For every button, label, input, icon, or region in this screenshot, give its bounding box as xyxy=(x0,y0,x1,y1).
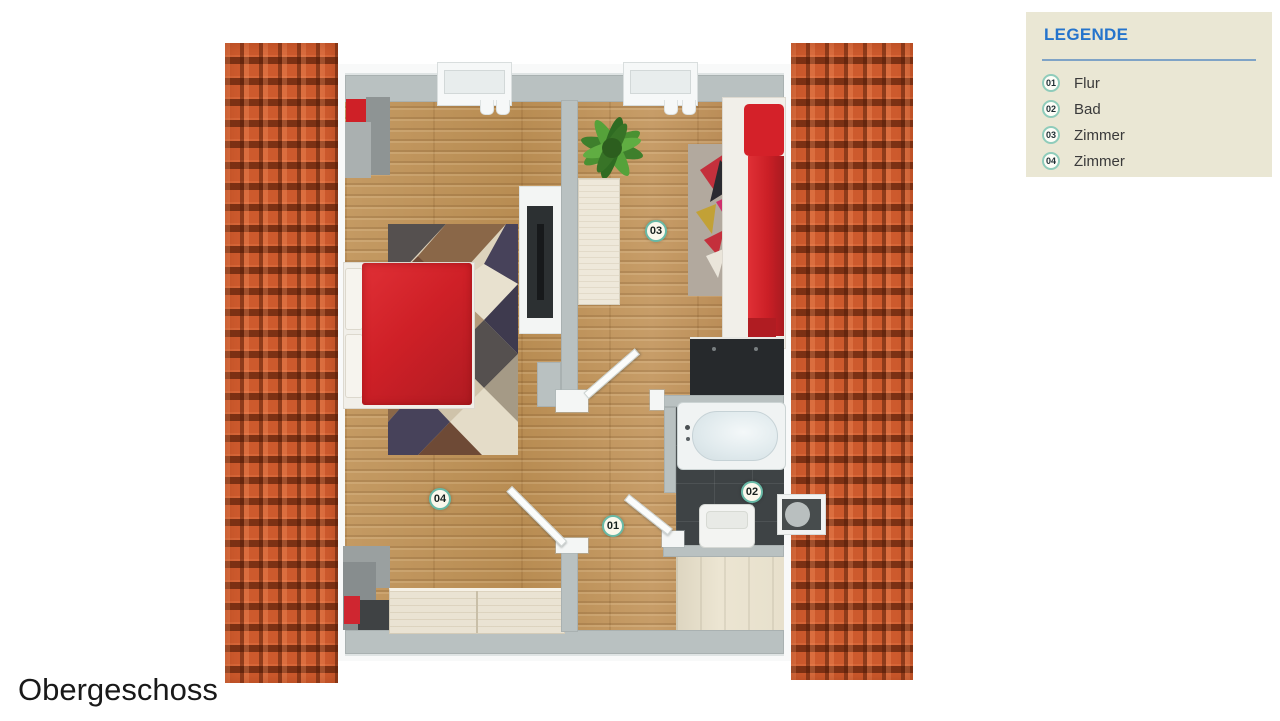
dresser-chest xyxy=(389,588,565,634)
wardrobe-handle xyxy=(712,347,716,351)
staircase-area xyxy=(676,557,784,630)
marker-number: 03 xyxy=(650,225,662,237)
legend-badge-number: 04 xyxy=(1046,156,1056,166)
legend-label: Flur xyxy=(1074,75,1100,92)
legend-title: LEGENDE xyxy=(1044,25,1128,45)
bathtub xyxy=(677,402,786,470)
sofa-red-pillow xyxy=(344,596,360,624)
bathtub-faucet xyxy=(686,437,690,441)
marker-number: 02 xyxy=(746,486,758,498)
marker-room-03-zimmer: 03 xyxy=(645,220,667,242)
desk-room-03 xyxy=(578,178,620,305)
marker-room-04-zimmer: 04 xyxy=(429,488,451,510)
wall-divider-upper xyxy=(561,100,578,392)
bed-room-04-pillow xyxy=(345,334,363,398)
washbasin-bowl xyxy=(785,502,810,527)
legend-badge-number: 03 xyxy=(1046,130,1056,140)
legend-badge: 03 xyxy=(1042,126,1060,144)
washbasin xyxy=(778,495,825,534)
toilet xyxy=(699,504,755,548)
legend-item-zimmer-04: 04 Zimmer xyxy=(1042,152,1125,170)
legend-badge-number: 01 xyxy=(1046,78,1056,88)
window-sill-tab xyxy=(682,100,696,115)
legend-badge: 01 xyxy=(1042,74,1060,92)
legend-item-flur: 01 Flur xyxy=(1042,74,1125,92)
bathtub-basin xyxy=(692,411,778,461)
window-pane xyxy=(444,70,505,94)
window-pane xyxy=(630,70,691,94)
tv-stand xyxy=(537,224,544,300)
marker-room-02-bad: 02 xyxy=(741,481,763,503)
tv-screen xyxy=(527,206,553,318)
toilet-lid xyxy=(706,511,748,529)
wardrobe-dark xyxy=(690,337,784,396)
legend-item-zimmer-03: 03 Zimmer xyxy=(1042,126,1125,144)
window-sill-tab xyxy=(480,100,494,115)
marker-number: 01 xyxy=(607,520,619,532)
wall-divider-lower xyxy=(561,552,578,632)
door-jamb xyxy=(650,390,664,410)
dresser-seam xyxy=(476,591,478,633)
legend-label: Bad xyxy=(1074,101,1101,118)
armchair-seat xyxy=(345,122,371,178)
legend-items: 01 Flur 02 Bad 03 Zimmer 04 Zimmer xyxy=(1042,74,1125,170)
legend-label: Zimmer xyxy=(1074,153,1125,170)
legend-panel: LEGENDE 01 Flur 02 Bad 03 Zimmer 04 Zimm… xyxy=(1026,12,1272,177)
legend-item-bad: 02 Bad xyxy=(1042,100,1125,118)
bed-room-03-pillow xyxy=(744,104,784,156)
wall-top xyxy=(345,73,784,102)
bed-room-04-pillow xyxy=(345,268,363,330)
floorplan-page: 01 02 03 04 LEGENDE 01 Flur 02 Bad 03 Zi… xyxy=(0,0,1280,721)
page-title: Obergeschoss xyxy=(18,672,218,708)
legend-badge-number: 02 xyxy=(1046,104,1056,114)
legend-badge: 04 xyxy=(1042,152,1060,170)
roof-tiles-left xyxy=(225,43,338,683)
sofa-shadow xyxy=(358,600,390,630)
marker-room-01-flur: 01 xyxy=(602,515,624,537)
marker-number: 04 xyxy=(434,493,446,505)
bed-room-04-duvet xyxy=(362,263,472,405)
window-sill-tab xyxy=(664,100,678,115)
legend-label: Zimmer xyxy=(1074,127,1125,144)
window-sill-tab xyxy=(496,100,510,115)
wardrobe-handle xyxy=(754,347,758,351)
legend-badge: 02 xyxy=(1042,100,1060,118)
bathtub-faucet xyxy=(685,425,690,430)
bed-room-03-duvet xyxy=(748,156,784,336)
legend-divider xyxy=(1042,59,1256,61)
wall-bath-left xyxy=(664,407,676,493)
roof-tiles-right xyxy=(791,43,913,680)
